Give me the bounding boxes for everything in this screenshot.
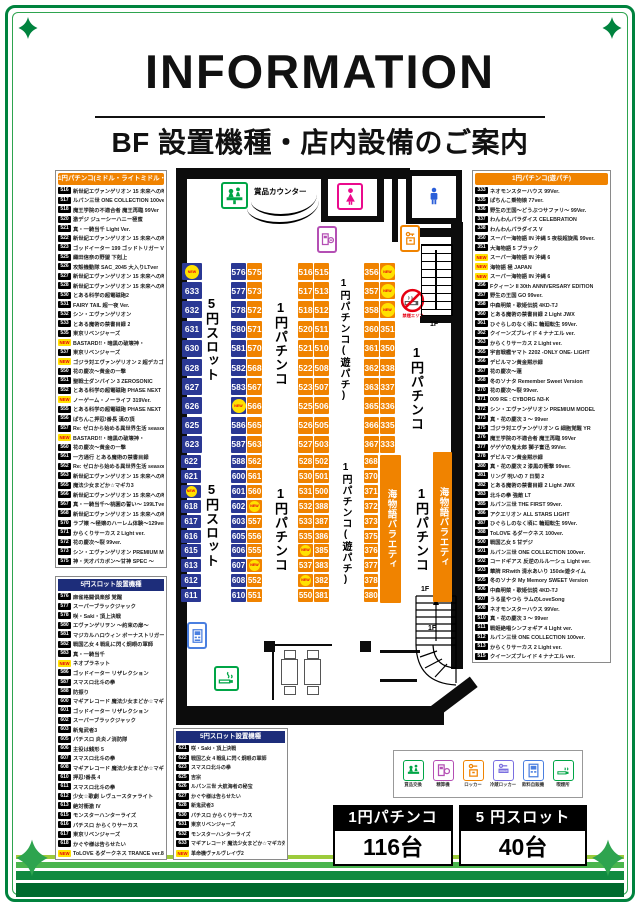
seat-cell: 628 (182, 359, 202, 376)
floor-label: 1F (428, 625, 436, 632)
seat-cell: 371 (364, 485, 378, 498)
seat-cell: 507 (314, 378, 329, 395)
seat-cell: 372 (364, 500, 378, 513)
pillar (360, 641, 371, 652)
seat-cell: 337 (380, 378, 395, 395)
seat-cell: 517 (298, 282, 313, 299)
seat-cell: 610 (231, 589, 246, 602)
seat-cell: 528 (298, 455, 313, 468)
seat-cell: 531 (298, 485, 313, 498)
seat-cell: 363 (364, 378, 379, 395)
seat-cell: 562 (247, 455, 262, 468)
seat-cell: 611 (181, 589, 201, 602)
seat-cell: 358 (364, 301, 379, 318)
wall (420, 228, 451, 237)
seat-cell: 561 (247, 470, 262, 483)
seat-cell: 386 (314, 530, 329, 543)
locker-icon (463, 760, 484, 781)
seat-cell: 617 (181, 515, 201, 528)
seat-cell: 622 (181, 455, 201, 468)
seat-cell: 526 (298, 417, 313, 434)
seat-cell: 555 (247, 544, 262, 557)
seat-cell: 375 (364, 530, 378, 543)
seat-cell: 361 (364, 340, 379, 357)
seat-cell: 533 (298, 515, 313, 528)
seat-cell: 602 (231, 500, 246, 513)
seat-cell: 615 (181, 544, 201, 557)
bank-label: 1円パチンコ (407, 345, 426, 485)
wall (377, 168, 384, 222)
prize-counter-icon (221, 182, 248, 209)
wall (321, 168, 328, 222)
seat-cell: 532 (298, 500, 313, 513)
seat-cell: 378 (364, 574, 378, 587)
bank-label: 1円パチンコ (412, 486, 431, 626)
umimonogatari-variety-band: 海物語バラエティ (433, 452, 452, 602)
restroom-male-icon (423, 182, 445, 210)
seat-cell: 505 (314, 417, 329, 434)
seat-cell: 618 (181, 500, 201, 513)
seat-cell: 573 (247, 282, 262, 299)
seat-cell: 338 (380, 359, 395, 376)
seat-new-cell: NEW (247, 559, 262, 572)
seat-cell: 362 (364, 359, 379, 376)
total-label: 5 円スロット (459, 805, 587, 831)
bank-label: 5円スロット (202, 296, 221, 436)
seat-cell: 582 (231, 359, 246, 376)
pay-machine-icon (433, 760, 454, 781)
seat-cell: 368 (364, 455, 378, 468)
seat-new-cell: NEW (380, 263, 395, 280)
seat-cell: 576 (231, 263, 246, 280)
seat-cell: 387 (314, 515, 329, 528)
seat-cell: 370 (364, 470, 378, 483)
seat-cell: 580 (231, 321, 246, 338)
seat-cell: 632 (182, 301, 202, 318)
seat-cell: 586 (231, 417, 246, 434)
seat-new-cell: NEW (247, 500, 262, 513)
seat-cell: 333 (380, 436, 395, 453)
seat-cell: 383 (314, 559, 329, 572)
seat-cell: 607 (231, 559, 246, 572)
smoking-area-icon (214, 666, 239, 691)
seat-cell: 616 (181, 530, 201, 543)
seat-cell: 626 (182, 397, 202, 414)
seat-cell: 613 (181, 559, 201, 572)
seat-new-cell: NEW (298, 574, 313, 587)
seat-cell: 335 (380, 417, 395, 434)
stairs-upper (421, 244, 453, 316)
legend-label: 飲料自販機 (522, 782, 544, 788)
seat-cell: 381 (314, 589, 329, 602)
seat-cell: 556 (247, 530, 262, 543)
seat-new-cell: NEW (380, 282, 395, 299)
seat-cell: 608 (231, 574, 246, 587)
seat-cell: 583 (231, 378, 246, 395)
legend-locker: ロッカー (459, 760, 488, 788)
seat-cell: 565 (247, 417, 262, 434)
smoking-area-icon (553, 760, 574, 781)
seat-cell: 336 (380, 397, 395, 414)
wall (176, 168, 410, 179)
seat-cell: 566 (247, 397, 262, 414)
total-count: 40台 (459, 831, 587, 866)
seat-cell: 518 (298, 301, 313, 318)
partition-line (272, 644, 274, 700)
wall (325, 216, 384, 222)
locker-icon (400, 225, 420, 252)
seat-cell: 376 (364, 544, 378, 557)
cold-locker-icon: COLD (493, 760, 514, 781)
legend-label: 喫煙所 (556, 782, 569, 788)
total-label: 1円パチンコ (333, 805, 453, 831)
seat-cell: 380 (364, 589, 378, 602)
wall (392, 168, 398, 242)
seat-cell: 508 (314, 359, 329, 376)
seat-new-cell: NEW (182, 263, 202, 280)
seat-cell: 510 (314, 340, 329, 357)
seat-cell: 535 (298, 530, 313, 543)
seat-cell: 382 (314, 574, 329, 587)
seat-cell: 631 (182, 321, 202, 338)
bank-label: 1円パチンコ(遊パチ) (336, 278, 351, 456)
seat-new-cell: NEW (380, 301, 395, 318)
seat-cell: 523 (298, 378, 313, 395)
seat-cell: 601 (231, 485, 246, 498)
seat-cell: 350 (380, 340, 395, 357)
seat-cell: 511 (314, 321, 329, 338)
seat-cell: 351 (380, 321, 395, 338)
vending-machine-icon (523, 760, 544, 781)
restroom-female-icon (337, 183, 363, 210)
seat-cell: 621 (181, 470, 201, 483)
seat-cell: 377 (364, 559, 378, 572)
seat-new-cell: NEW (231, 397, 246, 414)
seat-cell: 520 (298, 321, 313, 338)
seat-cell: 572 (247, 301, 262, 318)
seat-cell: 501 (314, 470, 329, 483)
bank-label: 5円スロット (202, 482, 221, 622)
total-5yen-slot: 5 円スロット 40台 (459, 805, 587, 866)
seat-cell: 568 (247, 359, 262, 376)
wall (176, 706, 444, 725)
facility-legend: 賞品交換 精算機 ロッカー COLD 冷蔵ロッカー 飲料自販機 喫煙所 (393, 750, 583, 798)
seat-cell: 388 (314, 500, 329, 513)
seat-cell: 367 (364, 436, 379, 453)
total-count: 116台 (333, 831, 453, 866)
floor-label: 1F (421, 586, 429, 593)
seat-cell: 587 (231, 436, 246, 453)
legend-vending: 飲料自販機 (519, 760, 548, 788)
seat-cell: 605 (231, 530, 246, 543)
seat-cell: 551 (247, 589, 262, 602)
svg-text:COLD: COLD (499, 769, 507, 773)
umimonogatari-variety-band: 海物語バラエティ (380, 455, 401, 603)
seat-cell: 512 (314, 301, 329, 318)
floor-label: 1F (430, 321, 438, 328)
seat-cell: 525 (298, 397, 313, 414)
seat-cell: 625 (182, 417, 202, 434)
seat-cell: 567 (247, 378, 262, 395)
seat-cell: 365 (364, 397, 379, 414)
bank-label: 1円パチンコ (271, 486, 290, 626)
legend-label: 精算機 (436, 782, 449, 788)
seat-new-cell: NEW (181, 485, 201, 498)
seat-cell: 552 (247, 574, 262, 587)
total-1yen-pachinko: 1円パチンコ 116台 (333, 805, 453, 866)
seat-cell: 527 (298, 436, 313, 453)
seat-cell: 521 (298, 340, 313, 357)
seat-cell: 550 (298, 589, 313, 602)
seat-cell: 360 (364, 321, 379, 338)
bank-label: 1円パチンコ(遊パチ) (338, 462, 353, 640)
information-poster: { "header": { "title": "INFORMATION", "s… (0, 0, 640, 907)
legend-label: ロッカー (464, 782, 482, 788)
seat-cell: 627 (182, 378, 202, 395)
seat-cell: 373 (364, 515, 378, 528)
seat-cell: 633 (182, 282, 202, 299)
seat-cell: 560 (247, 485, 262, 498)
legend-label: 賞品交換 (404, 782, 422, 788)
legend-smoking: 喫煙所 (549, 760, 578, 788)
pay-machine-icon (317, 226, 337, 253)
seat-cell: 588 (231, 455, 246, 468)
seat-cell: 623 (182, 436, 202, 453)
bank-label: 1円パチンコ (271, 300, 290, 440)
seat-cell: 612 (181, 574, 201, 587)
seat-new-cell: NEW (298, 544, 313, 557)
seat-cell: 502 (314, 455, 329, 468)
seat-cell: 563 (247, 436, 262, 453)
legend-label: 冷蔵ロッカー (490, 782, 516, 788)
seat-cell: 366 (364, 417, 379, 434)
legend-cold-locker: COLD 冷蔵ロッカー (489, 760, 518, 788)
prize-exchange-icon (403, 760, 424, 781)
seat-cell: 537 (298, 559, 313, 572)
seat-cell: 575 (247, 263, 262, 280)
seat-cell: 356 (364, 263, 379, 280)
seat-cell: 581 (231, 340, 246, 357)
seat-cell: 515 (314, 263, 329, 280)
seat-cell: 577 (231, 282, 246, 299)
seat-cell: 557 (247, 515, 262, 528)
seat-cell: 600 (231, 470, 246, 483)
vending-machine-icon (187, 622, 207, 649)
seat-cell: 578 (231, 301, 246, 318)
seat-cell: 530 (298, 470, 313, 483)
legend-prize-exchange: 賞品交換 (399, 760, 428, 788)
partition-line (272, 644, 332, 646)
legend-pay-machine: 精算機 (429, 760, 458, 788)
seat-cell: 603 (231, 515, 246, 528)
seat-cell: 513 (314, 282, 329, 299)
seat-cell: 357 (364, 282, 379, 299)
seat-cell: 503 (314, 436, 329, 453)
seat-cell: 385 (314, 544, 329, 557)
seat-cell: 500 (314, 485, 329, 498)
seat-cell: 522 (298, 359, 313, 376)
seat-cell: 606 (231, 544, 246, 557)
seat-cell: 506 (314, 397, 329, 414)
seat-cell: 630 (182, 340, 202, 357)
seat-cell: 571 (247, 321, 262, 338)
seat-cell: 570 (247, 340, 262, 357)
stairs-arrow (435, 250, 437, 310)
seat-cell: 516 (298, 263, 313, 280)
